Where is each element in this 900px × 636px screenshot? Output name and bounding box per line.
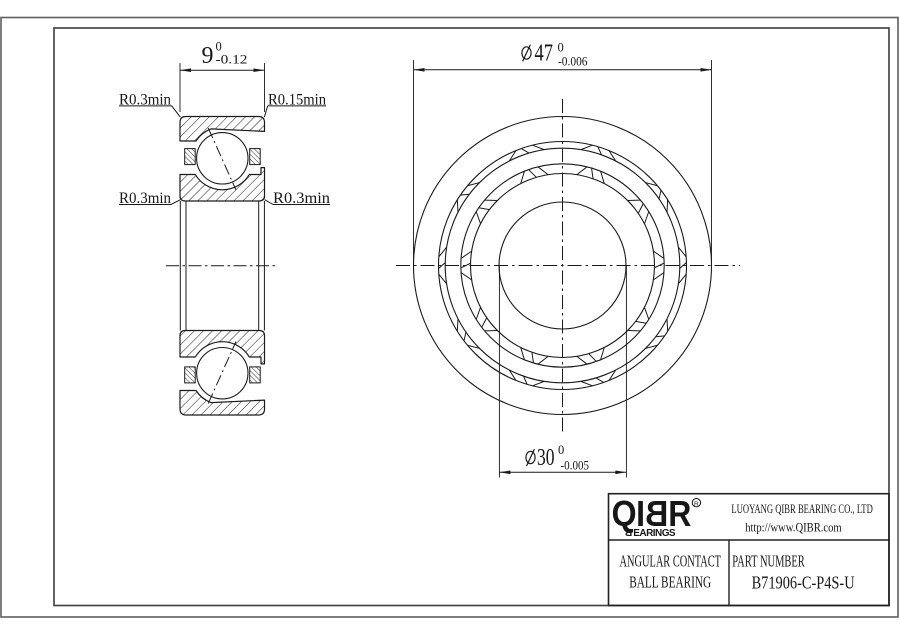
svg-text:-0.12: -0.12 [216,53,248,67]
svg-text:R: R [694,501,699,508]
svg-text:PART NUMBER: PART NUMBER [732,551,805,570]
svg-text:http://www.QIBR.com: http://www.QIBR.com [745,521,842,535]
svg-text:9: 9 [202,43,214,69]
svg-text:47: 47 [535,41,554,67]
svg-text:BALL BEARING: BALL BEARING [629,573,711,592]
svg-text:-0.005: -0.005 [561,458,590,472]
svg-text:-0.006: -0.006 [558,54,588,68]
svg-text:B71906-C-P4S-U: B71906-C-P4S-U [752,572,855,592]
svg-text:0: 0 [558,443,564,457]
svg-text:R0.15min: R0.15min [268,91,326,108]
svg-text:ANGULAR CONTACT: ANGULAR CONTACT [620,551,722,570]
svg-text:R0.3min: R0.3min [119,190,171,207]
svg-text:LUOYANG QIBR BEARING CO., LTD: LUOYANG QIBR BEARING CO., LTD [731,501,872,516]
svg-text:0: 0 [558,41,564,55]
svg-text:R0.3min: R0.3min [119,91,171,108]
svg-text:R0.3min: R0.3min [273,190,330,207]
svg-text:B: B [625,528,632,539]
svg-text:30: 30 [537,445,555,471]
svg-text:EARINGS: EARINGS [633,528,676,539]
svg-text:0: 0 [216,40,222,54]
